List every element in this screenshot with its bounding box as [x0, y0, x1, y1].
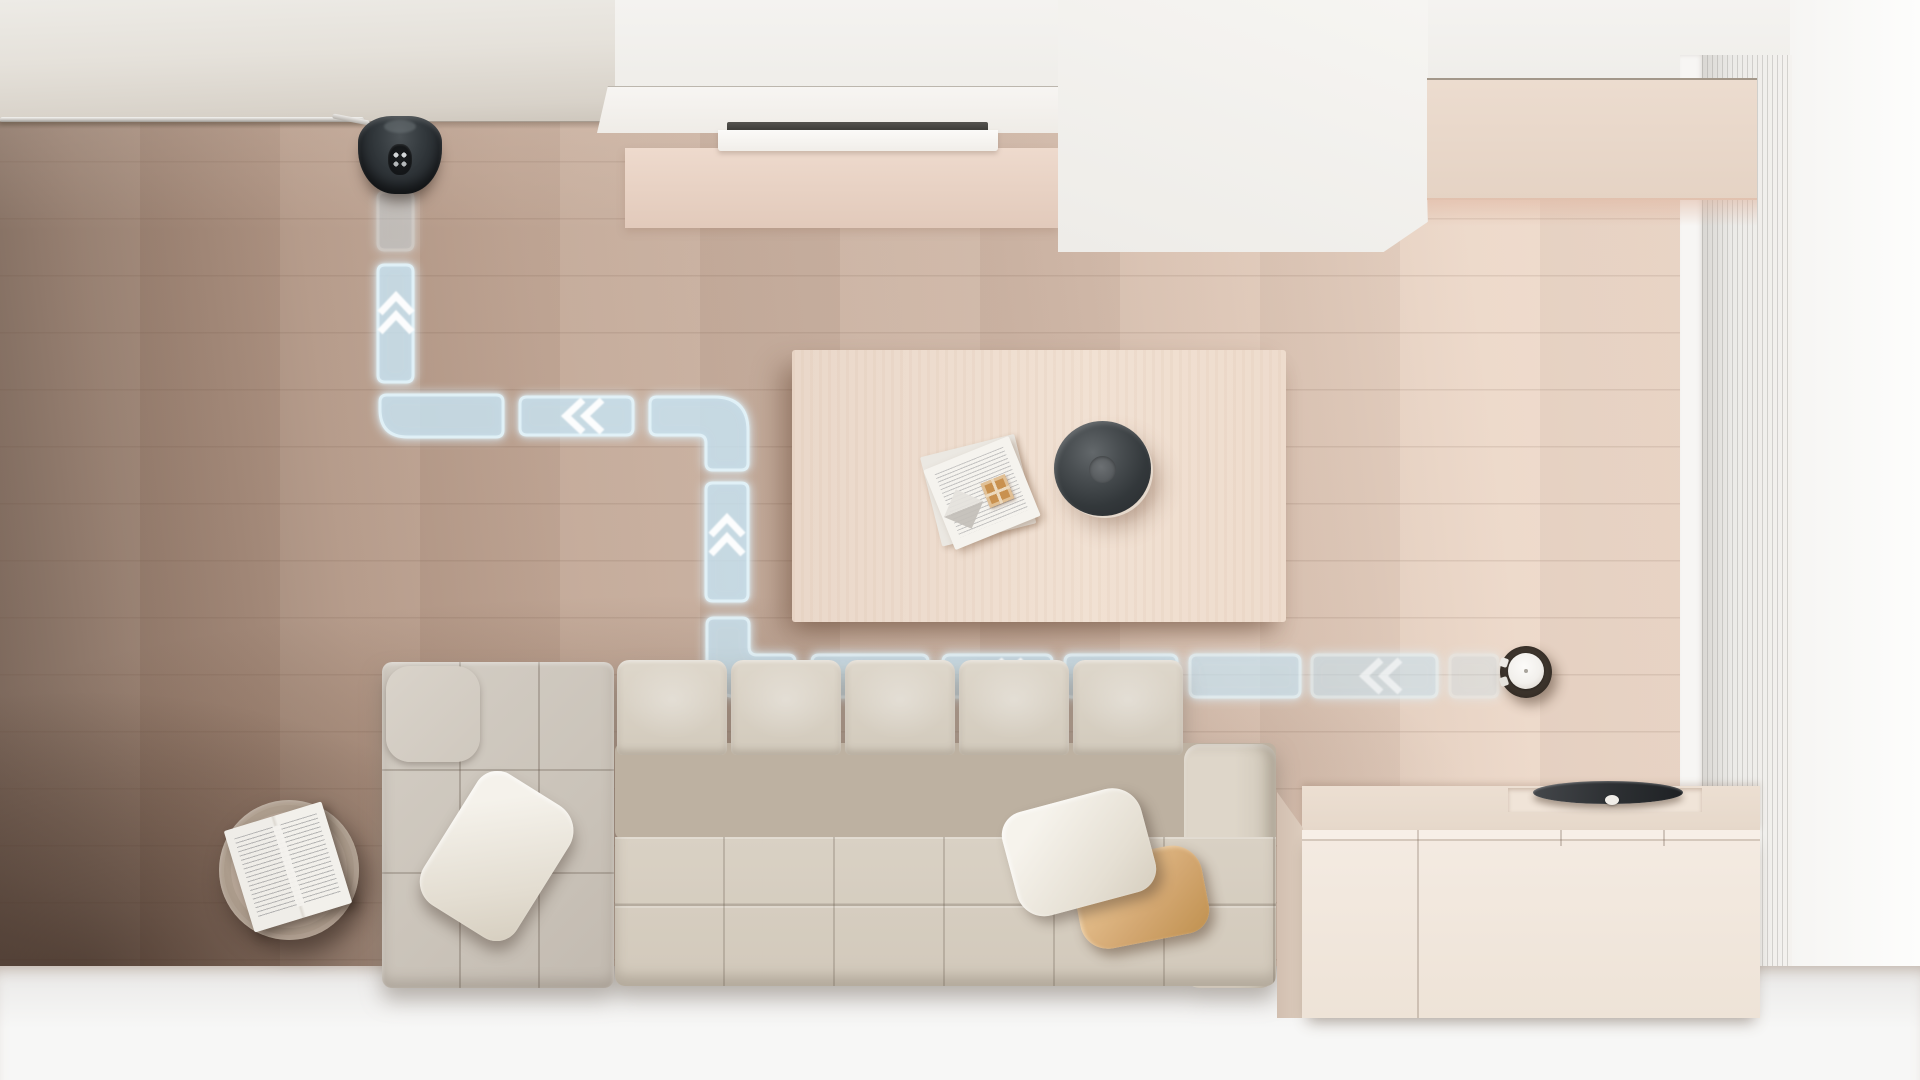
dock-charging-contacts — [388, 144, 412, 175]
sideboard-seam — [1560, 830, 1562, 846]
magazine-text-lines — [935, 447, 1029, 538]
speaker-disc-button — [1605, 795, 1619, 805]
decorative-bowl — [1054, 421, 1156, 521]
robot-vacuum — [1500, 646, 1552, 698]
living-room-scene — [0, 0, 1920, 1080]
speaker-disc — [1533, 781, 1683, 804]
bowl-center — [1089, 456, 1116, 483]
sideboard-side — [1277, 792, 1303, 1018]
route-segment-bottom-row-5 — [1312, 655, 1437, 697]
coffee-table — [792, 350, 1286, 622]
robot-bumper-mark — [1499, 676, 1509, 687]
robot-center-dot — [1524, 669, 1528, 673]
sofa-back-cushion — [731, 660, 841, 755]
sideboard-seam — [1663, 830, 1665, 846]
sofa-headrest — [386, 666, 480, 762]
side-table — [219, 800, 359, 940]
book-text-lines — [234, 813, 341, 918]
sofa-back-cushion — [845, 660, 955, 755]
route-segment-dock-approach — [378, 192, 413, 250]
sideboard-front — [1302, 830, 1760, 1018]
charging-dock — [358, 116, 442, 194]
route-segment-turn-left-up — [380, 395, 503, 437]
route-segment-robot-start — [1450, 655, 1498, 697]
sofa-back-cushion — [1073, 660, 1183, 755]
power-cable — [0, 117, 364, 122]
open-book — [224, 801, 353, 932]
route-segment-turn-up-to-left — [650, 397, 748, 470]
sofa-back-cushion — [617, 660, 727, 755]
dock-top-highlight — [384, 120, 416, 133]
robot-dome — [1508, 653, 1544, 689]
sofa-backrest-base — [615, 743, 1276, 839]
sofa-back-cushion — [959, 660, 1069, 755]
